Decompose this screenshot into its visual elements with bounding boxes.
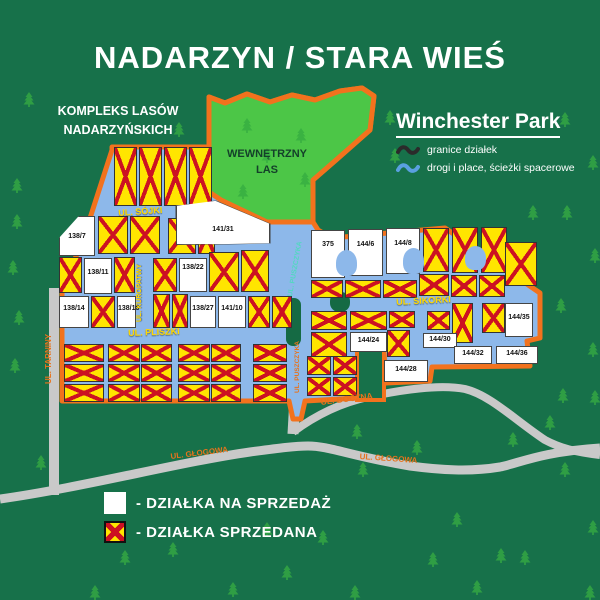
plot-for-sale[interactable]: 144/30 xyxy=(423,333,457,348)
plot-sold xyxy=(64,364,104,382)
plot-number: 144/30 xyxy=(424,336,456,343)
plot-number: 138/7 xyxy=(60,233,94,240)
plot-sold xyxy=(178,364,210,382)
tree-icon xyxy=(8,260,19,275)
tree-icon xyxy=(558,388,569,403)
plot-sold xyxy=(481,227,507,273)
plot-for-sale[interactable]: 144/24 xyxy=(350,332,387,352)
tree-icon xyxy=(428,552,439,567)
plot-sold xyxy=(311,311,347,330)
tree-icon xyxy=(168,542,179,557)
culdesac-bulb xyxy=(465,246,486,270)
plot-sold xyxy=(172,294,188,328)
culdesac-bulb xyxy=(336,250,357,276)
plot-sold xyxy=(114,147,137,206)
plot-number: 144/6 xyxy=(349,241,382,248)
plot-sold xyxy=(253,344,287,362)
plot-sold xyxy=(241,250,269,292)
road-squiggle-icon xyxy=(396,162,420,174)
plot-number: 144/8 xyxy=(387,240,419,247)
tree-icon xyxy=(545,415,556,430)
plot-sold xyxy=(451,275,477,297)
tree-icon xyxy=(588,342,599,357)
plot-sold xyxy=(139,147,162,206)
tree-icon xyxy=(350,585,361,600)
plot-sold xyxy=(130,216,160,254)
plot-sold xyxy=(178,384,210,402)
legend-row-boundaries: granice działek xyxy=(396,144,596,156)
tree-icon xyxy=(590,248,600,263)
plot-number: 144/36 xyxy=(497,350,537,357)
culdesac-bulb xyxy=(403,248,424,274)
plot-sold xyxy=(153,294,170,328)
tree-icon xyxy=(14,310,25,325)
plot-for-sale[interactable]: 141/10 xyxy=(218,296,246,328)
plot-sold xyxy=(272,296,292,328)
plot-sold xyxy=(153,258,177,292)
plot-for-sale[interactable]: 144/35 xyxy=(505,303,533,337)
for-sale-swatch xyxy=(104,492,126,514)
tree-icon xyxy=(508,432,519,447)
plot-for-sale[interactable]: 138/22 xyxy=(179,258,207,292)
park-name: Winchester Park xyxy=(396,110,560,138)
plot-sold xyxy=(389,311,415,328)
plot-number: 144/28 xyxy=(385,366,427,373)
plot-sold xyxy=(311,332,347,357)
plot-number: 141/31 xyxy=(177,226,269,233)
plot-sold xyxy=(211,344,241,362)
plot-sold xyxy=(189,147,212,206)
outer-forest-label: KOMPLEKS LASÓW NADARZYŃSKICH xyxy=(18,102,218,140)
inner-forest-label: WEWNĘTRZNY LAS xyxy=(197,146,337,178)
plot-number: 138/22 xyxy=(180,264,206,271)
tree-icon xyxy=(556,298,567,313)
key-sold: - DZIAŁKA SPRZEDANA xyxy=(104,521,317,543)
plot-for-sale[interactable]: 138/11 xyxy=(84,258,112,294)
park-legend: Winchester Park granice działek drogi i … xyxy=(396,110,596,174)
plot-sold xyxy=(59,257,82,293)
tree-icon xyxy=(412,440,423,455)
tree-icon xyxy=(560,462,571,477)
plot-sold xyxy=(482,303,505,333)
tree-icon xyxy=(496,548,507,563)
plot-sold xyxy=(98,216,128,254)
tree-icon xyxy=(90,585,101,600)
plot-sold xyxy=(178,344,210,362)
plot-sold xyxy=(64,344,104,362)
tree-icon xyxy=(590,390,600,405)
tree-icon xyxy=(472,580,483,595)
plot-sold xyxy=(253,384,287,402)
plot-sold xyxy=(350,311,387,330)
estate-map: NADARZYN / STARA WIEŚ KOMPLEKS LASÓW NAD… xyxy=(0,0,600,600)
plot-sold xyxy=(108,384,140,402)
plot-for-sale[interactable]: 138/14 xyxy=(59,296,89,328)
tree-icon xyxy=(12,178,23,193)
tree-icon xyxy=(120,550,131,565)
plot-sold xyxy=(209,252,239,292)
plot-sold xyxy=(387,330,410,357)
plot-number: 138/16 xyxy=(118,305,135,312)
street-label-tarniny: UL. TARNINY xyxy=(44,334,53,384)
plot-sold xyxy=(307,377,331,396)
plot-number: 138/27 xyxy=(191,305,215,312)
page-title: NADARZYN / STARA WIEŚ xyxy=(0,40,600,76)
plot-sold xyxy=(164,147,187,206)
street-label-puszczyka_lower: UL. PUSZCZYKA xyxy=(294,341,301,393)
tree-icon xyxy=(452,512,463,527)
plot-for-sale[interactable]: 144/32 xyxy=(454,346,492,364)
plot-for-sale[interactable]: 138/16 xyxy=(117,296,136,328)
tree-icon xyxy=(585,585,596,600)
plot-sold xyxy=(211,384,241,402)
plot-sold xyxy=(479,275,505,297)
tree-icon xyxy=(352,424,363,439)
plot-sold xyxy=(307,356,331,375)
plot-sold xyxy=(108,344,140,362)
plot-number: 141/10 xyxy=(219,305,245,312)
plot-sold xyxy=(333,356,357,375)
plot-for-sale[interactable]: 138/27 xyxy=(190,296,216,328)
plot-number: 144/32 xyxy=(455,350,491,357)
key-for-sale: - DZIAŁKA NA SPRZEDAŻ xyxy=(104,492,331,514)
plot-sold xyxy=(141,384,172,402)
plot-for-sale[interactable]: 144/28 xyxy=(384,360,428,382)
street-label-kuropatwy: UL. KUROPATWY xyxy=(136,264,143,322)
sold-swatch xyxy=(104,521,126,543)
plot-sold xyxy=(248,296,270,328)
plot-number: 144/35 xyxy=(506,314,532,321)
tree-icon xyxy=(318,530,329,545)
plot-for-sale[interactable]: 144/36 xyxy=(496,346,538,364)
plot-sold xyxy=(91,296,115,328)
street-label-pliszki: UL. PLISZKI xyxy=(128,326,180,338)
plot-sold xyxy=(108,364,140,382)
plot-sold xyxy=(419,274,449,296)
plot-number: 138/11 xyxy=(85,269,111,276)
tree-icon xyxy=(520,550,531,565)
plot-sold xyxy=(64,384,104,402)
tree-icon xyxy=(12,214,23,229)
plot-sold xyxy=(423,228,449,272)
legend-row-roads: drogi i place, ścieżki spacerowe xyxy=(396,162,596,174)
plot-sold xyxy=(505,242,537,286)
plot-sold xyxy=(253,364,287,382)
plot-number: 144/24 xyxy=(351,337,386,344)
plot-number: 375 xyxy=(312,241,344,248)
boundary-squiggle-icon xyxy=(396,144,420,156)
plot-sold xyxy=(345,280,381,298)
plot-sold xyxy=(427,311,450,330)
tree-icon xyxy=(358,462,369,477)
tree-icon xyxy=(562,205,573,220)
tree-icon xyxy=(36,455,47,470)
plot-sold xyxy=(141,344,172,362)
tree-icon xyxy=(282,565,293,580)
tree-icon xyxy=(528,205,539,220)
plot-sold xyxy=(211,364,241,382)
plot-sold xyxy=(311,280,343,298)
tree-icon xyxy=(588,520,599,535)
tree-icon xyxy=(228,582,239,597)
plot-sold xyxy=(141,364,172,382)
plot-number: 138/14 xyxy=(60,305,88,312)
plot-sold xyxy=(114,257,135,293)
tree-icon xyxy=(10,358,21,373)
tree-icon xyxy=(385,110,396,125)
